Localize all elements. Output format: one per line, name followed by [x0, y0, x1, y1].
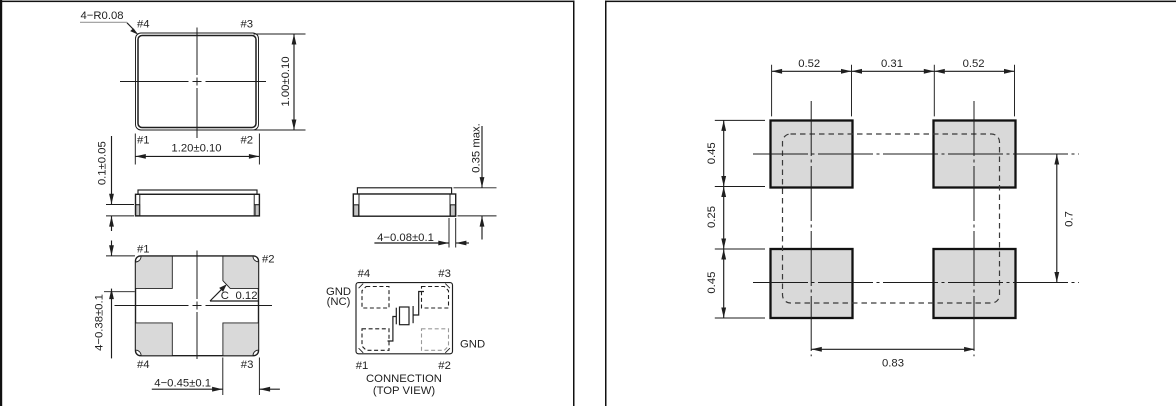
svg-text:#4: #4 [137, 359, 150, 371]
svg-text:#2: #2 [438, 360, 451, 372]
svg-text:4−0.45±0.1: 4−0.45±0.1 [154, 377, 211, 389]
svg-text:4−0.38±0.1: 4−0.38±0.1 [94, 294, 106, 351]
svg-text:C: C [221, 290, 229, 302]
svg-text:1.20±0.10: 1.20±0.10 [171, 142, 221, 154]
svg-text:CONNECTION: CONNECTION [366, 373, 442, 385]
svg-text:0.12: 0.12 [236, 290, 258, 302]
svg-text:0.52: 0.52 [963, 58, 985, 70]
svg-text:#4: #4 [358, 268, 371, 280]
svg-text:#1: #1 [137, 135, 150, 147]
svg-text:#4: #4 [137, 19, 150, 31]
svg-text:#2: #2 [262, 254, 275, 266]
svg-text:0.7: 0.7 [1063, 211, 1075, 227]
svg-text:#3: #3 [241, 19, 254, 31]
svg-text:4−R0.08: 4−R0.08 [81, 10, 124, 22]
svg-text:0.45: 0.45 [706, 272, 718, 294]
svg-text:#2: #2 [241, 135, 254, 147]
svg-text:#3: #3 [241, 359, 254, 371]
svg-text:#1: #1 [137, 244, 150, 256]
svg-text:0.31: 0.31 [881, 58, 903, 70]
svg-text:4−0.08±0.1: 4−0.08±0.1 [377, 232, 434, 244]
svg-text:0.25: 0.25 [706, 206, 718, 228]
svg-text:#3: #3 [438, 268, 451, 280]
svg-text:0.52: 0.52 [798, 58, 820, 70]
svg-text:0.45: 0.45 [706, 142, 718, 164]
svg-text:(NC): (NC) [327, 296, 351, 308]
svg-text:GND: GND [460, 339, 485, 351]
svg-text:0.83: 0.83 [882, 358, 904, 370]
svg-text:0.1±0.05: 0.1±0.05 [96, 141, 108, 185]
svg-text:1.00±0.10: 1.00±0.10 [280, 56, 292, 106]
svg-text:#1: #1 [356, 360, 369, 372]
svg-text:(TOP VIEW): (TOP VIEW) [373, 385, 436, 397]
svg-text:0.35 max.: 0.35 max. [471, 123, 483, 173]
